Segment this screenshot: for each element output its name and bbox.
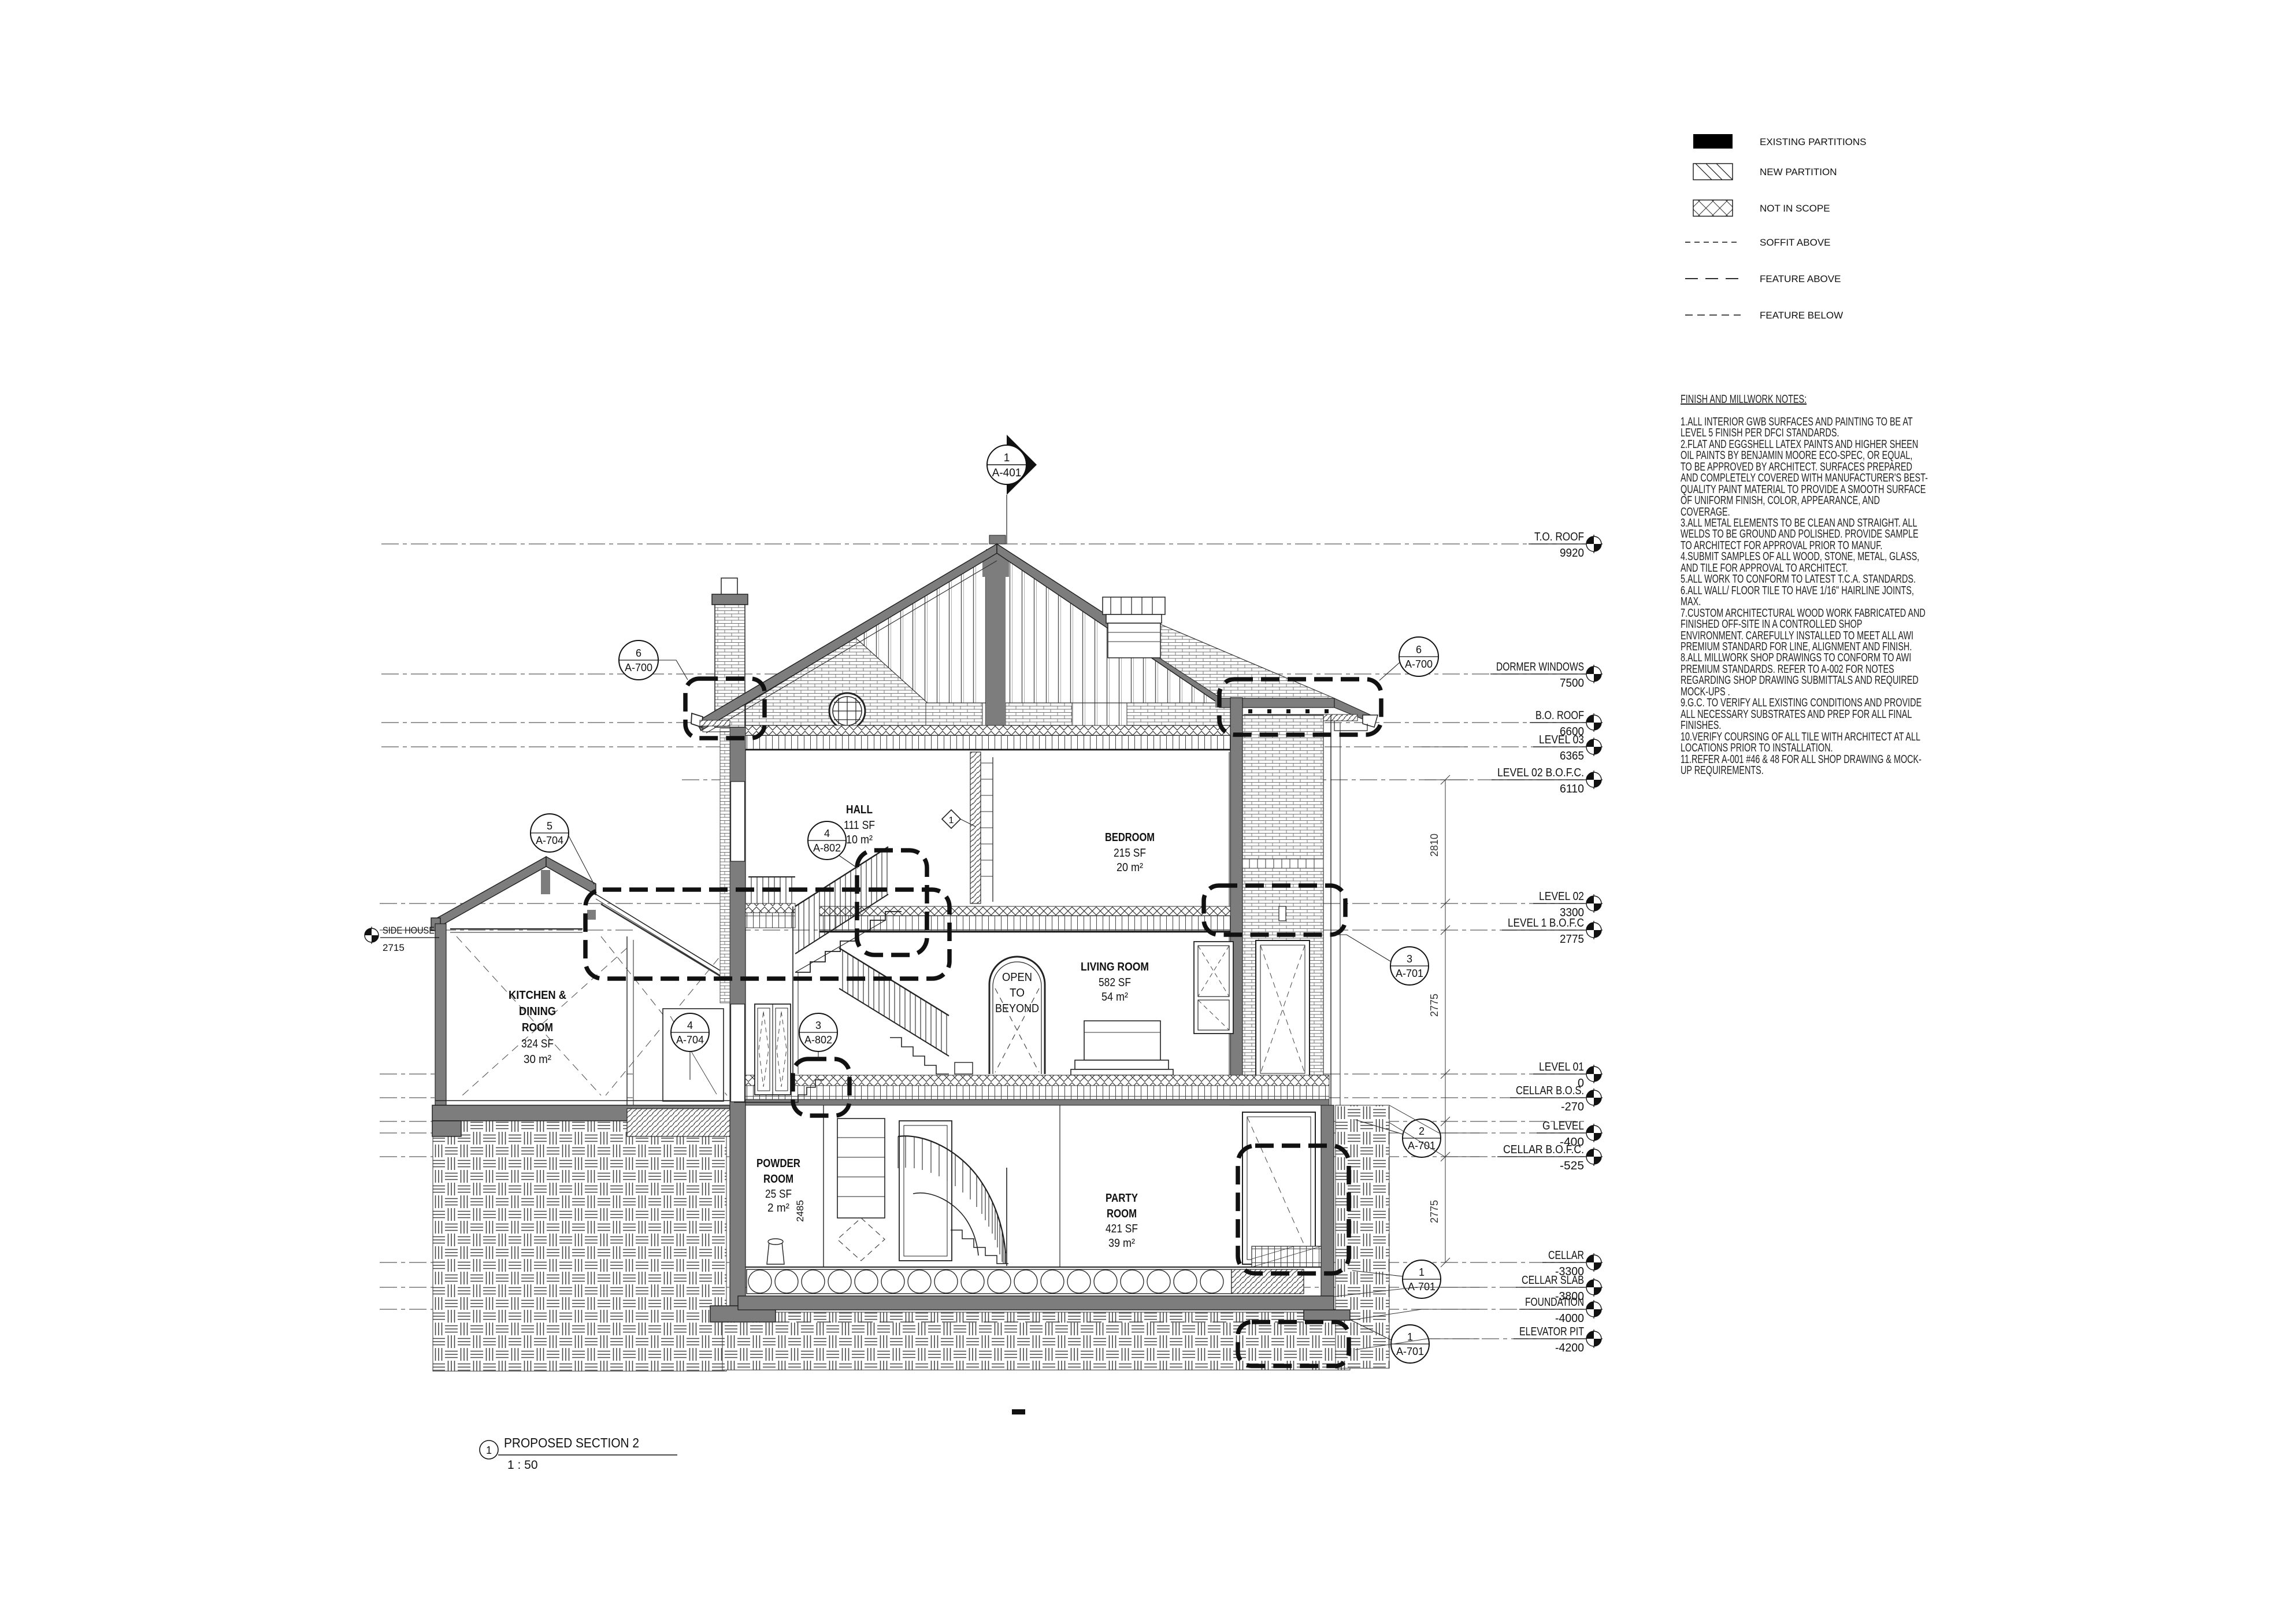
svg-text:DORMER WINDOWS: DORMER WINDOWS — [1496, 661, 1584, 673]
svg-text:2775: 2775 — [1560, 933, 1584, 946]
svg-text:A-701: A-701 — [1408, 1140, 1436, 1151]
svg-text:-525: -525 — [1560, 1160, 1584, 1172]
svg-text:CELLAR SLAB: CELLAR SLAB — [1522, 1274, 1584, 1287]
svg-text:6: 6 — [1416, 644, 1422, 656]
svg-text:10 m²: 10 m² — [846, 834, 873, 846]
svg-text:1: 1 — [1419, 1267, 1425, 1278]
svg-text:G LEVEL: G LEVEL — [1542, 1120, 1584, 1132]
svg-text:25 SF: 25 SF — [765, 1188, 792, 1201]
svg-text:OPEN: OPEN — [1002, 971, 1032, 984]
svg-text:2 m²: 2 m² — [767, 1202, 789, 1214]
svg-text:2775: 2775 — [1429, 994, 1440, 1017]
svg-text:2715: 2715 — [383, 942, 405, 953]
svg-text:1: 1 — [486, 1445, 492, 1456]
svg-text:LIVING ROOM: LIVING ROOM — [1081, 961, 1149, 973]
svg-text:5: 5 — [547, 820, 552, 832]
svg-text:20 m²: 20 m² — [1117, 861, 1143, 874]
svg-text:SOFFIT ABOVE: SOFFIT ABOVE — [1760, 237, 1831, 248]
svg-text:582 SF: 582 SF — [1099, 976, 1131, 989]
svg-text:ELEVATOR PIT: ELEVATOR PIT — [1519, 1325, 1584, 1338]
svg-text:A-401: A-401 — [992, 467, 1022, 479]
svg-text:SIDE HOUSE: SIDE HOUSE — [383, 925, 435, 936]
svg-text:9920: 9920 — [1560, 547, 1584, 560]
svg-text:7500: 7500 — [1560, 677, 1584, 690]
svg-text:421 SF: 421 SF — [1106, 1223, 1138, 1235]
svg-text:HALL: HALL — [846, 803, 873, 816]
svg-text:30 m²: 30 m² — [524, 1053, 551, 1066]
svg-text:A-704: A-704 — [536, 835, 563, 846]
svg-text:CELLAR: CELLAR — [1548, 1249, 1584, 1262]
svg-text:4: 4 — [824, 828, 830, 839]
svg-text:111 SF: 111 SF — [844, 819, 875, 832]
svg-text:1: 1 — [949, 816, 954, 825]
svg-text:FEATURE BELOW: FEATURE BELOW — [1760, 310, 1843, 321]
svg-text:FEATURE ABOVE: FEATURE ABOVE — [1760, 273, 1841, 284]
svg-text:NEW PARTITION: NEW PARTITION — [1760, 166, 1837, 177]
svg-text:LEVEL 01: LEVEL 01 — [1539, 1061, 1584, 1073]
svg-text:3: 3 — [815, 1020, 821, 1031]
svg-text:T.O. ROOF: T.O. ROOF — [1534, 531, 1584, 543]
svg-text:KITCHEN &: KITCHEN & — [509, 989, 566, 1002]
svg-text:LEVEL 02: LEVEL 02 — [1539, 890, 1584, 903]
svg-text:POWDER: POWDER — [756, 1157, 800, 1170]
svg-text:A-701: A-701 — [1396, 968, 1423, 979]
svg-text:3: 3 — [1407, 953, 1412, 965]
svg-text:ROOM: ROOM — [763, 1173, 793, 1186]
svg-text:A-701: A-701 — [1408, 1281, 1436, 1293]
svg-text:CELLAR B.O.F.C.: CELLAR B.O.F.C. — [1503, 1143, 1584, 1156]
svg-text:6: 6 — [636, 647, 641, 659]
svg-text:LEVEL 02 B.O.F.C.: LEVEL 02 B.O.F.C. — [1497, 766, 1584, 779]
svg-text:39 m²: 39 m² — [1108, 1237, 1135, 1250]
svg-text:2: 2 — [1419, 1125, 1425, 1137]
svg-text:2775: 2775 — [1429, 1200, 1440, 1223]
svg-text:A-700: A-700 — [625, 662, 652, 673]
svg-text:ROOM: ROOM — [522, 1021, 553, 1034]
svg-text:EXISTING PARTITIONS: EXISTING PARTITIONS — [1760, 136, 1867, 147]
svg-text:BEDROOM: BEDROOM — [1105, 831, 1155, 844]
svg-text:NOT IN SCOPE: NOT IN SCOPE — [1760, 203, 1830, 214]
svg-text:6365: 6365 — [1560, 750, 1584, 762]
svg-text:6110: 6110 — [1560, 783, 1584, 795]
svg-text:215 SF: 215 SF — [1114, 847, 1146, 860]
svg-text:DINING: DINING — [519, 1005, 556, 1018]
svg-text:2485: 2485 — [795, 1200, 806, 1222]
svg-text:54 m²: 54 m² — [1101, 991, 1128, 1003]
svg-text:1: 1 — [1004, 452, 1010, 464]
svg-text:FOUNDATION: FOUNDATION — [1525, 1296, 1584, 1309]
svg-text:LEVEL 03: LEVEL 03 — [1539, 734, 1584, 746]
svg-text:TO: TO — [1010, 987, 1025, 999]
svg-text:PROPOSED SECTION 2: PROPOSED SECTION 2 — [504, 1435, 639, 1450]
svg-text:-270: -270 — [1561, 1101, 1584, 1113]
svg-text:324 SF: 324 SF — [521, 1038, 554, 1050]
svg-text:BEYOND: BEYOND — [995, 1002, 1039, 1015]
svg-text:LEVEL 1 B.O.F.C: LEVEL 1 B.O.F.C — [1508, 917, 1584, 929]
svg-text:A-802: A-802 — [804, 1034, 832, 1046]
svg-text:PARTY: PARTY — [1106, 1192, 1138, 1205]
svg-text:-4200: -4200 — [1555, 1342, 1584, 1354]
svg-text:2810: 2810 — [1429, 834, 1440, 857]
svg-text:CELLAR B.O.S.: CELLAR B.O.S. — [1516, 1084, 1584, 1097]
svg-text:1 : 50: 1 : 50 — [507, 1458, 538, 1472]
svg-text:-4000: -4000 — [1555, 1312, 1584, 1325]
svg-text:B.O. ROOF: B.O. ROOF — [1535, 709, 1584, 722]
svg-text:A-701: A-701 — [1396, 1346, 1424, 1357]
svg-text:A-704: A-704 — [676, 1034, 704, 1046]
svg-text:A-700: A-700 — [1405, 658, 1433, 670]
svg-text:A-802: A-802 — [813, 842, 841, 854]
svg-text:ROOM: ROOM — [1107, 1208, 1137, 1220]
svg-text:4: 4 — [687, 1020, 693, 1031]
